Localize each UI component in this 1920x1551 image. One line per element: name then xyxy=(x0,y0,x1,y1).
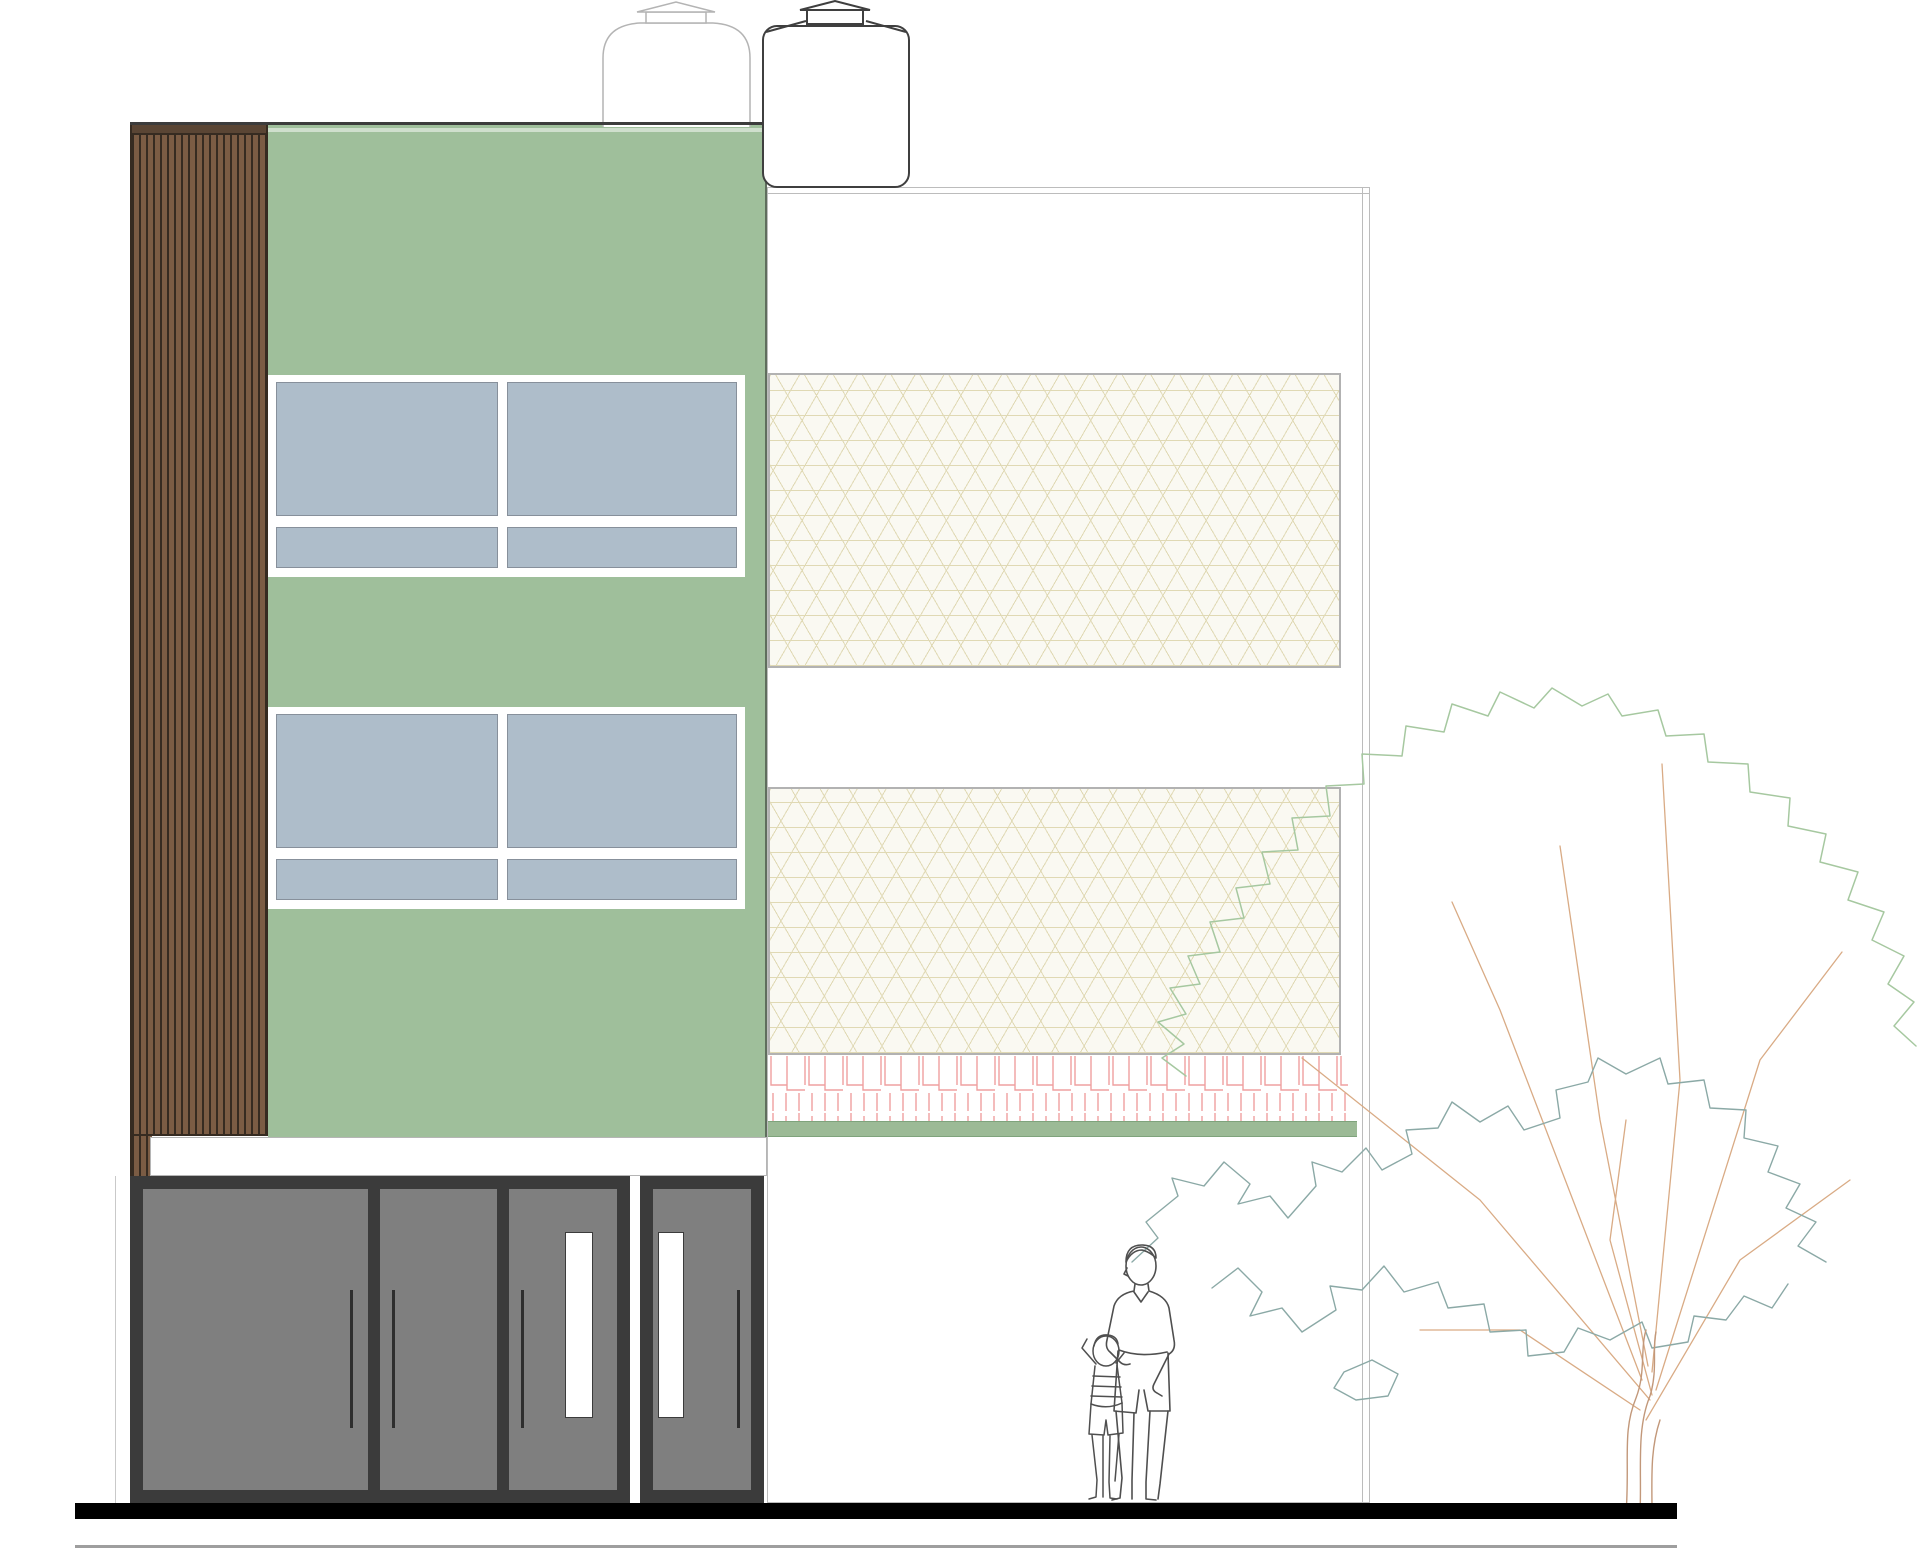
door-handle xyxy=(521,1290,524,1428)
tree-inner-foliage xyxy=(1132,1058,1826,1262)
window-pane xyxy=(276,382,498,516)
door-handle xyxy=(350,1290,353,1428)
water-tank-rear xyxy=(603,2,750,127)
side-entry-door xyxy=(640,1176,764,1503)
window-pane xyxy=(276,714,498,848)
door-handle xyxy=(737,1290,740,1428)
window-transom-pane xyxy=(507,859,737,900)
tree-trunk xyxy=(1626,1330,1660,1514)
door-glass-slot xyxy=(565,1232,593,1418)
wood-slat-panel xyxy=(130,123,268,1136)
elevation-drawing xyxy=(0,0,1920,1551)
tree xyxy=(1130,680,1920,1550)
door-glass-slot xyxy=(658,1232,684,1418)
window-transom-pane xyxy=(507,527,737,568)
wood-slat-foot xyxy=(130,1136,152,1176)
scale-figures xyxy=(1072,1238,1197,1506)
water-tanks xyxy=(585,0,925,190)
window-row-lower xyxy=(268,707,745,909)
roof-parapet-line xyxy=(130,122,763,125)
base-reference-line xyxy=(75,1545,1677,1548)
window-row-upper xyxy=(268,375,745,577)
entry-door xyxy=(509,1189,617,1490)
window-transom-pane xyxy=(276,859,498,900)
water-tank-front xyxy=(763,1,909,187)
tree-inner-foliage xyxy=(1212,1266,1788,1356)
ground-wall-edge-line xyxy=(115,1176,116,1503)
window-pane xyxy=(507,382,737,516)
window-pane xyxy=(507,714,737,848)
window-transom-pane xyxy=(276,527,498,568)
sliding-panel xyxy=(380,1189,497,1490)
tree-branches xyxy=(1302,764,1850,1420)
door-handle xyxy=(392,1290,395,1428)
lattice-screen-panel-upper xyxy=(768,373,1341,668)
ground-line-bar xyxy=(75,1503,1677,1519)
storefront-unit xyxy=(130,1176,630,1503)
green-facade xyxy=(268,125,767,1137)
tree-canopy-outline xyxy=(1158,688,1916,1076)
white-facade-parapet-line xyxy=(767,193,1370,194)
floor-slab-band xyxy=(150,1137,767,1176)
tree-foliage-tuft xyxy=(1334,1360,1398,1400)
sliding-panel xyxy=(143,1189,368,1490)
